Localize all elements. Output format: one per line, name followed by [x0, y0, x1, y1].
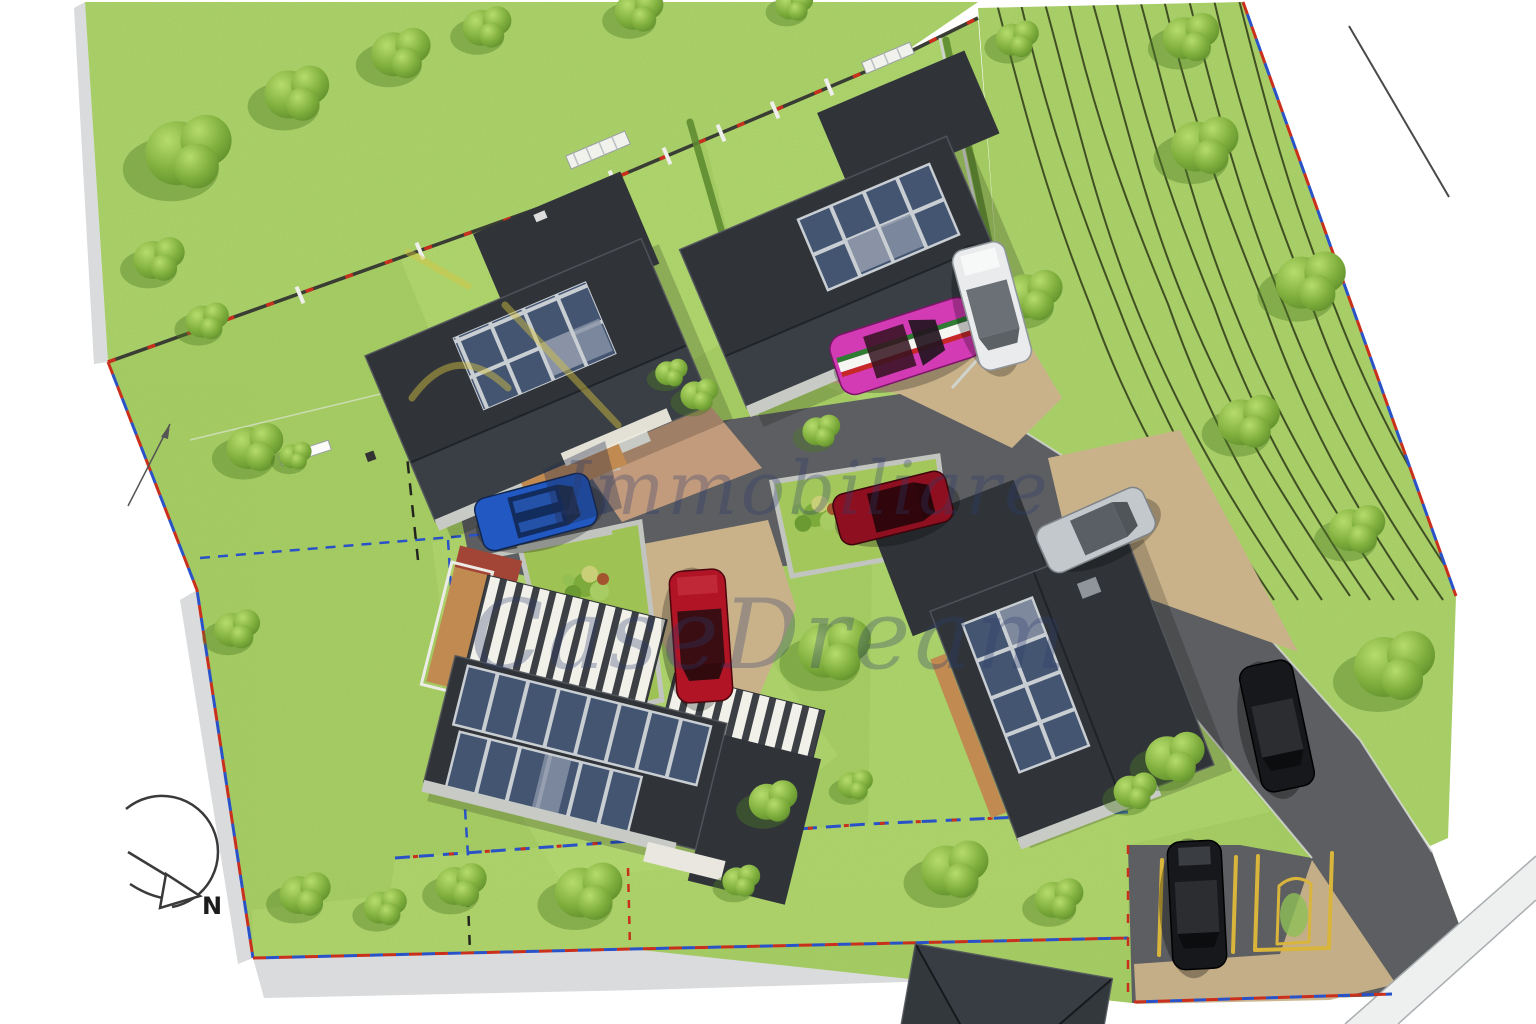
watermark-line1: Immobiliare	[560, 446, 1051, 532]
offsite-road-line	[1349, 26, 1449, 197]
compass-label: N	[202, 892, 222, 920]
stall-grass-patch	[1280, 893, 1308, 937]
stall-line-bottom	[1255, 948, 1329, 950]
watermark-line2: CaseDream	[470, 579, 1071, 691]
site-plan-canvas: Immobiliare CaseDream N	[0, 0, 1536, 1024]
site-plan-rendering: Immobiliare CaseDream N	[0, 0, 1536, 1024]
compass-arrowhead	[160, 874, 200, 908]
north-arrow: N	[126, 796, 222, 920]
